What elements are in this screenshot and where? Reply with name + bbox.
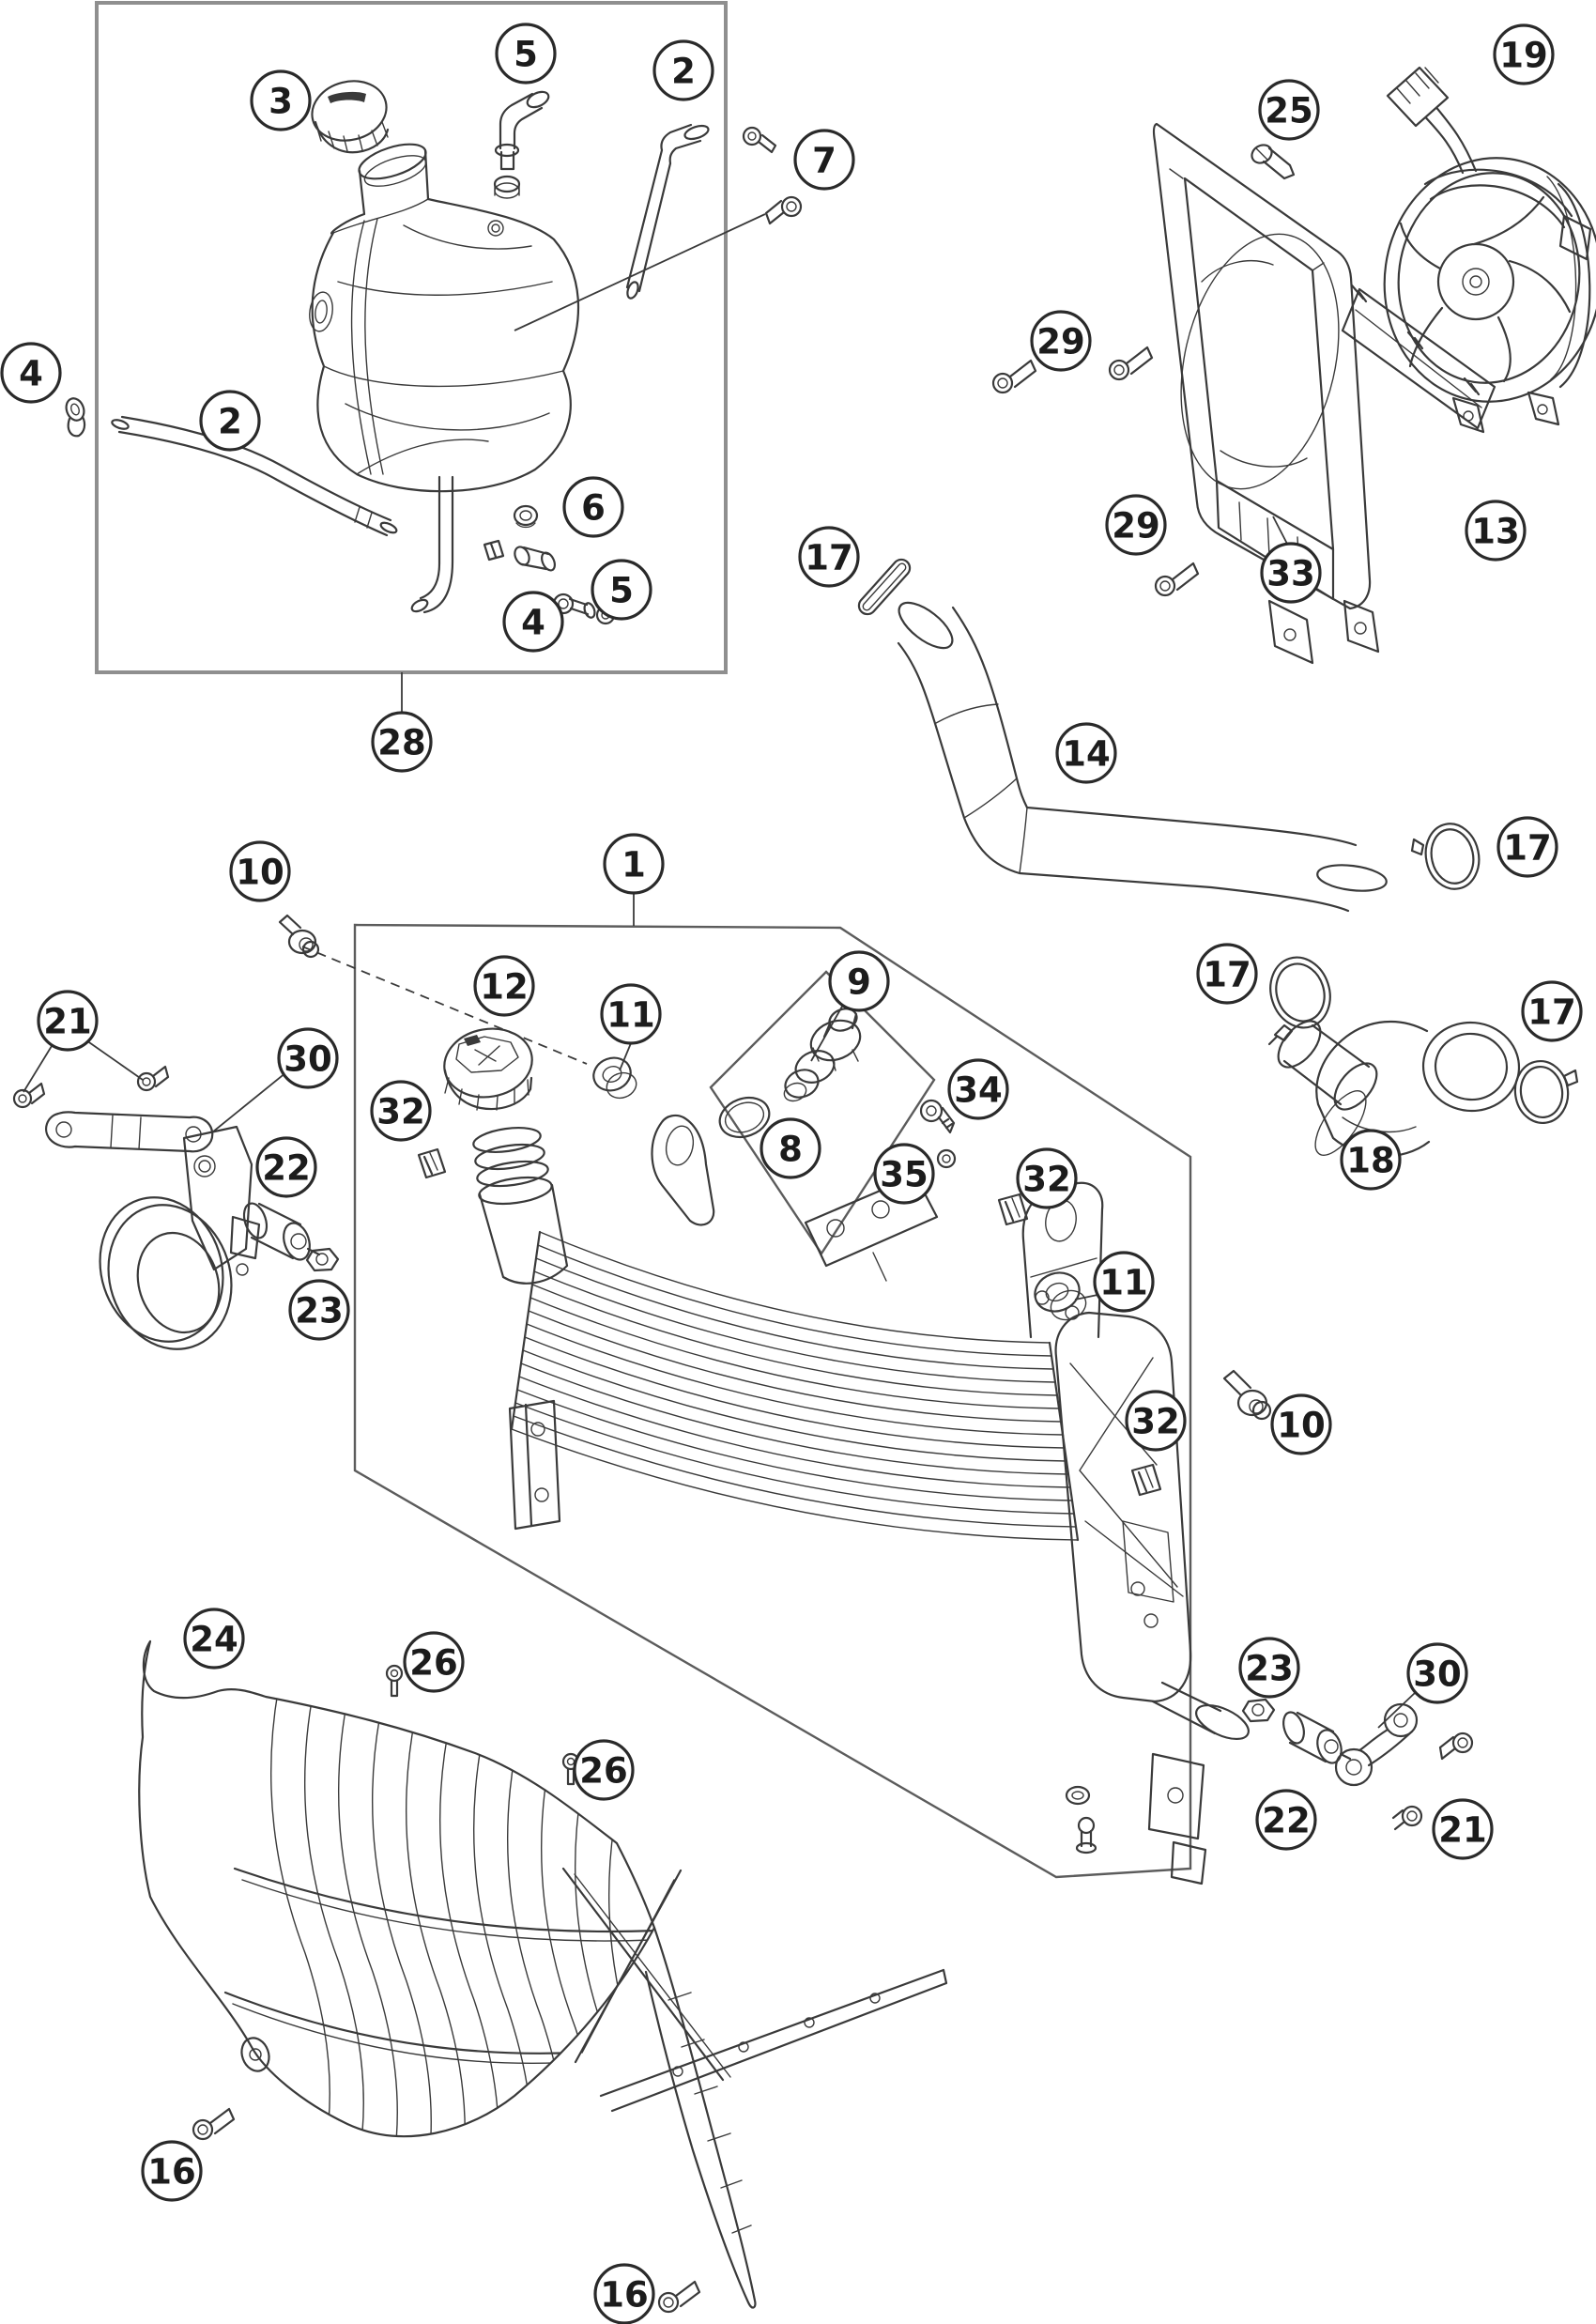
callout-number: 21 [43, 1001, 92, 1041]
callout-number: 24 [190, 1619, 238, 1659]
valve-kit-region [711, 972, 934, 1254]
callout-22-2[interactable]: 22 [1257, 1791, 1315, 1849]
expansion-tank-drawing [307, 137, 578, 491]
callout-number: 34 [954, 1070, 1003, 1110]
callout-number: 19 [1499, 35, 1548, 75]
callout-30[interactable]: 30 [279, 1029, 337, 1087]
callout-29-2[interactable]: 29 [1107, 496, 1165, 554]
callout-number: 14 [1062, 733, 1111, 774]
callout-number: 22 [1262, 1800, 1311, 1840]
radiator-cap-drawing [438, 1022, 537, 1110]
leader-line-5 [1378, 1692, 1416, 1728]
callout-number: 5 [514, 34, 538, 74]
region-frames [97, 3, 1190, 1877]
callout-number: 12 [480, 966, 529, 1007]
callout-33[interactable]: 33 [1262, 544, 1320, 602]
bumper-22-drawing-left [240, 1201, 319, 1264]
callout-number: 10 [236, 852, 284, 892]
callout-14[interactable]: 14 [1057, 724, 1115, 782]
callout-21-2[interactable]: 21 [1434, 1800, 1492, 1858]
callout-number: 23 [1245, 1648, 1294, 1688]
callouts: 1223445567891010111112131416161717171718… [2, 24, 1581, 2323]
callout-6[interactable]: 6 [564, 478, 622, 536]
callout-number: 25 [1265, 90, 1313, 131]
radiator-core-drawing [512, 1232, 1078, 1540]
parts-diagram: 1223445567891010111112131416161717171718… [0, 0, 1596, 2324]
callout-9[interactable]: 9 [830, 952, 888, 1010]
connector-parts-drawing [484, 506, 558, 573]
callout-number: 17 [805, 537, 853, 577]
callout-5-2[interactable]: 5 [592, 561, 651, 619]
callout-13[interactable]: 13 [1466, 501, 1525, 560]
callout-number: 5 [609, 570, 634, 610]
screw-29-drawings [993, 347, 1198, 595]
callout-number: 32 [1131, 1401, 1180, 1441]
nut-35-drawing [938, 1150, 955, 1167]
callout-number: 16 [147, 2151, 196, 2192]
callout-number: 30 [1413, 1654, 1462, 1694]
callout-number: 18 [1346, 1140, 1395, 1180]
callout-number: 28 [377, 722, 426, 762]
callout-number: 29 [1036, 321, 1085, 362]
spacer-plate-drawing [1343, 285, 1495, 428]
seal-drawing [855, 556, 913, 618]
callout-32[interactable]: 32 [372, 1082, 430, 1140]
callout-number: 3 [269, 81, 293, 121]
screw-26-drawing-1 [387, 1666, 402, 1696]
callout-number: 30 [284, 1039, 332, 1079]
bracket-arm-drawing [46, 1112, 212, 1151]
callout-12[interactable]: 12 [475, 957, 533, 1015]
louver-tail-drawing [646, 1928, 755, 2308]
callout-number: 23 [295, 1290, 344, 1331]
callout-23-2[interactable]: 23 [1240, 1639, 1298, 1697]
callout-1[interactable]: 1 [605, 835, 663, 893]
callout-number: 33 [1266, 553, 1315, 593]
callout-17-3[interactable]: 17 [1198, 945, 1256, 1003]
callout-number: 7 [812, 140, 836, 180]
callout-2-2[interactable]: 2 [201, 392, 259, 450]
callout-21[interactable]: 21 [38, 992, 97, 1050]
overflow-tube-drawing [421, 477, 453, 612]
screw-25-drawing [1249, 142, 1294, 178]
callout-number: 17 [1503, 827, 1552, 868]
hose-clamp-drawing-2 [1262, 949, 1339, 1044]
callout-8[interactable]: 8 [761, 1119, 820, 1177]
callout-7[interactable]: 7 [795, 131, 853, 189]
radiator-assembly [280, 916, 1270, 1884]
bolt-21-drawing-2 [138, 1067, 168, 1090]
callout-number: 4 [19, 353, 43, 393]
callout-number: 10 [1277, 1405, 1326, 1445]
callout-number: 17 [1203, 954, 1251, 994]
elbow-connector-drawing [1270, 1014, 1523, 1163]
leader-line-4 [212, 1072, 286, 1132]
collar-screw-drawing-lower [1224, 1371, 1270, 1419]
leader-line-2 [86, 1040, 143, 1080]
louver-outline [139, 1641, 654, 2136]
callout-11[interactable]: 11 [602, 985, 660, 1043]
callout-number: 2 [671, 51, 696, 91]
clip-drawing-left [63, 396, 86, 437]
callout-number: 13 [1471, 511, 1520, 551]
callout-number: 6 [581, 487, 606, 528]
bolt-21-drawing-1 [14, 1084, 44, 1107]
callout-number: 11 [606, 994, 655, 1035]
callout-number: 9 [847, 962, 871, 1002]
screw-7-drawings [744, 128, 801, 223]
hose-clamp-drawing-3 [1512, 1057, 1577, 1126]
callout-number: 17 [1527, 992, 1576, 1032]
radiator-hose-drawing [892, 594, 1388, 911]
callout-17-2[interactable]: 17 [1498, 818, 1557, 876]
nut-21-drawing [1393, 1807, 1421, 1829]
clip-32-drawing-3 [1132, 1465, 1160, 1495]
callout-number: 26 [579, 1750, 628, 1791]
core-left-bracket-drawing [510, 1401, 560, 1529]
callout-number: 11 [1099, 1262, 1148, 1302]
callout-10-2[interactable]: 10 [1272, 1395, 1330, 1454]
callout-2[interactable]: 2 [654, 41, 713, 100]
nut-23-drawing-right [1243, 1700, 1274, 1721]
callout-18[interactable]: 18 [1342, 1131, 1400, 1189]
callout-19[interactable]: 19 [1495, 25, 1553, 84]
callout-4[interactable]: 4 [2, 344, 60, 402]
callout-number: 32 [376, 1091, 425, 1131]
callout-35[interactable]: 35 [875, 1145, 933, 1203]
callout-number: 22 [262, 1147, 311, 1188]
callout-34[interactable]: 34 [949, 1060, 1007, 1118]
callout-11-2[interactable]: 11 [1095, 1253, 1153, 1311]
bolt-21-drawing-3 [1440, 1733, 1472, 1759]
link-bracket-30-drawing [1336, 1704, 1417, 1785]
louver-brace-drawing [563, 1869, 946, 2111]
callout-5[interactable]: 5 [497, 24, 555, 83]
vent-fitting-drawing [495, 89, 551, 198]
callout-number: 1 [622, 844, 646, 885]
horn-assembly [14, 1067, 338, 1365]
callout-number: 35 [880, 1154, 928, 1194]
callout-26-2[interactable]: 26 [575, 1741, 633, 1799]
tank-cap-drawing [306, 73, 393, 152]
callout-26[interactable]: 26 [405, 1633, 463, 1691]
callout-17-4[interactable]: 17 [1523, 982, 1581, 1040]
screw-16-drawing-1 [193, 2109, 234, 2139]
callout-number: 8 [778, 1129, 803, 1169]
callout-number: 16 [600, 2274, 649, 2315]
callout-30-2[interactable]: 30 [1408, 1644, 1466, 1702]
callout-number: 4 [521, 602, 545, 642]
callout-23[interactable]: 23 [290, 1281, 348, 1339]
clip-32-drawing-1 [419, 1149, 445, 1177]
callout-number: 21 [1438, 1809, 1487, 1850]
nut-23-drawing-left [307, 1249, 338, 1270]
callout-17[interactable]: 17 [800, 528, 858, 586]
filler-neck-drawing [472, 1124, 567, 1284]
hose-clamp-drawing-1 [1412, 819, 1485, 894]
callout-22[interactable]: 22 [257, 1138, 315, 1196]
callout-3[interactable]: 3 [252, 71, 310, 130]
leader-line-8 [302, 947, 587, 1064]
callout-number: 32 [1022, 1159, 1071, 1199]
callout-32-2[interactable]: 32 [1018, 1149, 1076, 1208]
callout-number: 29 [1112, 505, 1160, 546]
tank-bottom-bracket-drawing [1149, 1754, 1205, 1884]
callout-16[interactable]: 16 [143, 2142, 201, 2200]
callout-4-2[interactable]: 4 [504, 593, 562, 651]
screw-16-drawing-2 [659, 2282, 699, 2312]
expansion-tank-assembly [63, 73, 801, 623]
callout-28[interactable]: 28 [373, 713, 431, 771]
callout-number: 2 [218, 401, 242, 441]
callout-16-2[interactable]: 16 [595, 2265, 653, 2323]
leader-line-3 [23, 1046, 52, 1092]
callout-24[interactable]: 24 [185, 1609, 243, 1668]
bolt-34-drawing [921, 1100, 954, 1132]
collar-screw-drawing-upper [280, 916, 318, 957]
callout-32-3[interactable]: 32 [1127, 1392, 1185, 1450]
callout-29[interactable]: 29 [1032, 312, 1090, 370]
grommet-drawing-upper [589, 1053, 639, 1102]
callout-number: 26 [409, 1642, 458, 1683]
callout-10[interactable]: 10 [231, 842, 289, 900]
mount-bolt-drawing [1067, 1787, 1096, 1853]
horn-drawing [82, 1127, 259, 1365]
callout-25[interactable]: 25 [1260, 81, 1318, 139]
ear-bracket-drawing [652, 1116, 714, 1225]
